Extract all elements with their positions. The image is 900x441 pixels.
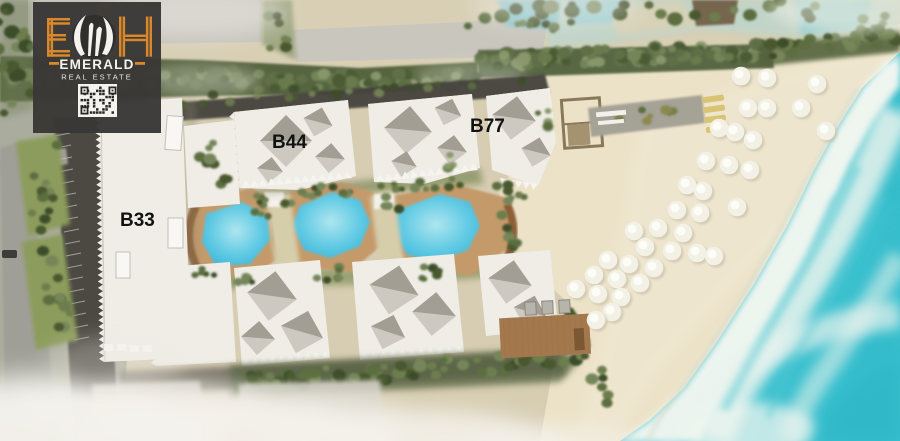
svg-text:B77: B77 [470,116,505,137]
svg-text:B33: B33 [120,210,155,231]
svg-text:EMERALD: EMERALD [59,57,134,72]
svg-text:REAL ESTATE: REAL ESTATE [61,73,132,82]
svg-text:B44: B44 [272,132,307,153]
